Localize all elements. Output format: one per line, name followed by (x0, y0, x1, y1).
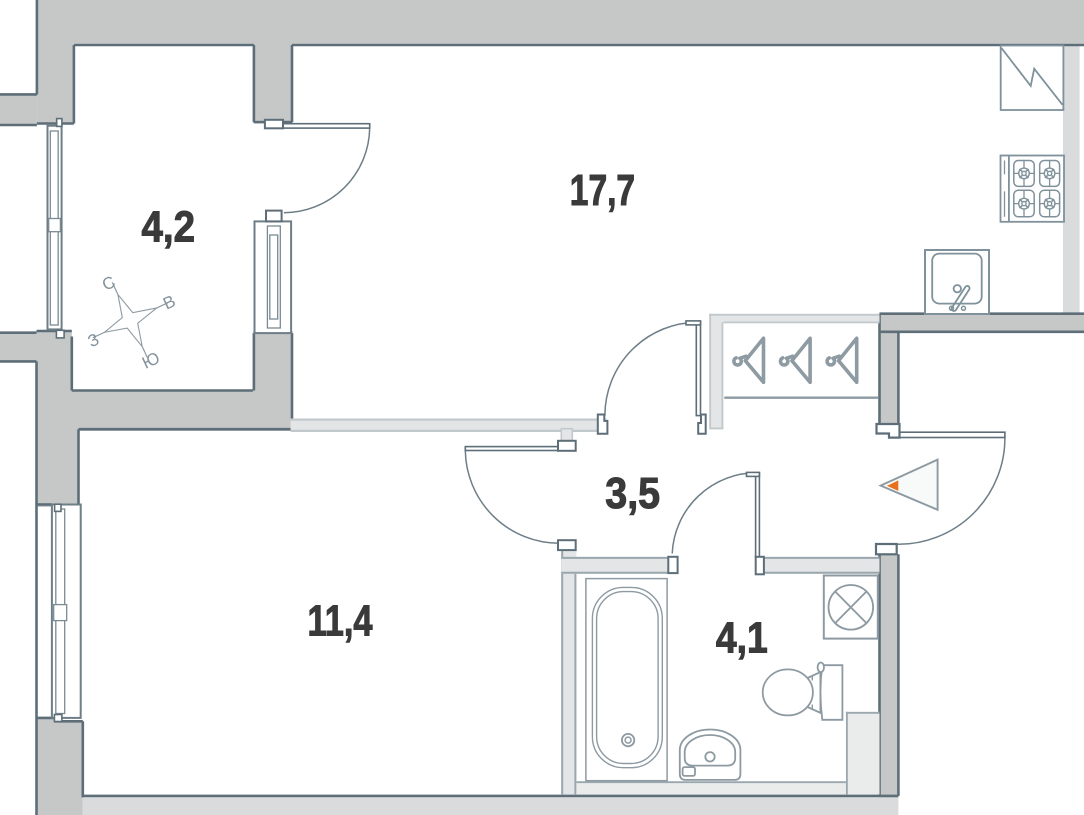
svg-text:4,2: 4,2 (142, 203, 196, 252)
svg-text:17,7: 17,7 (570, 166, 635, 215)
svg-text:3,5: 3,5 (605, 469, 660, 518)
svg-text:11,4: 11,4 (308, 597, 373, 646)
svg-text:4,1: 4,1 (716, 613, 768, 662)
